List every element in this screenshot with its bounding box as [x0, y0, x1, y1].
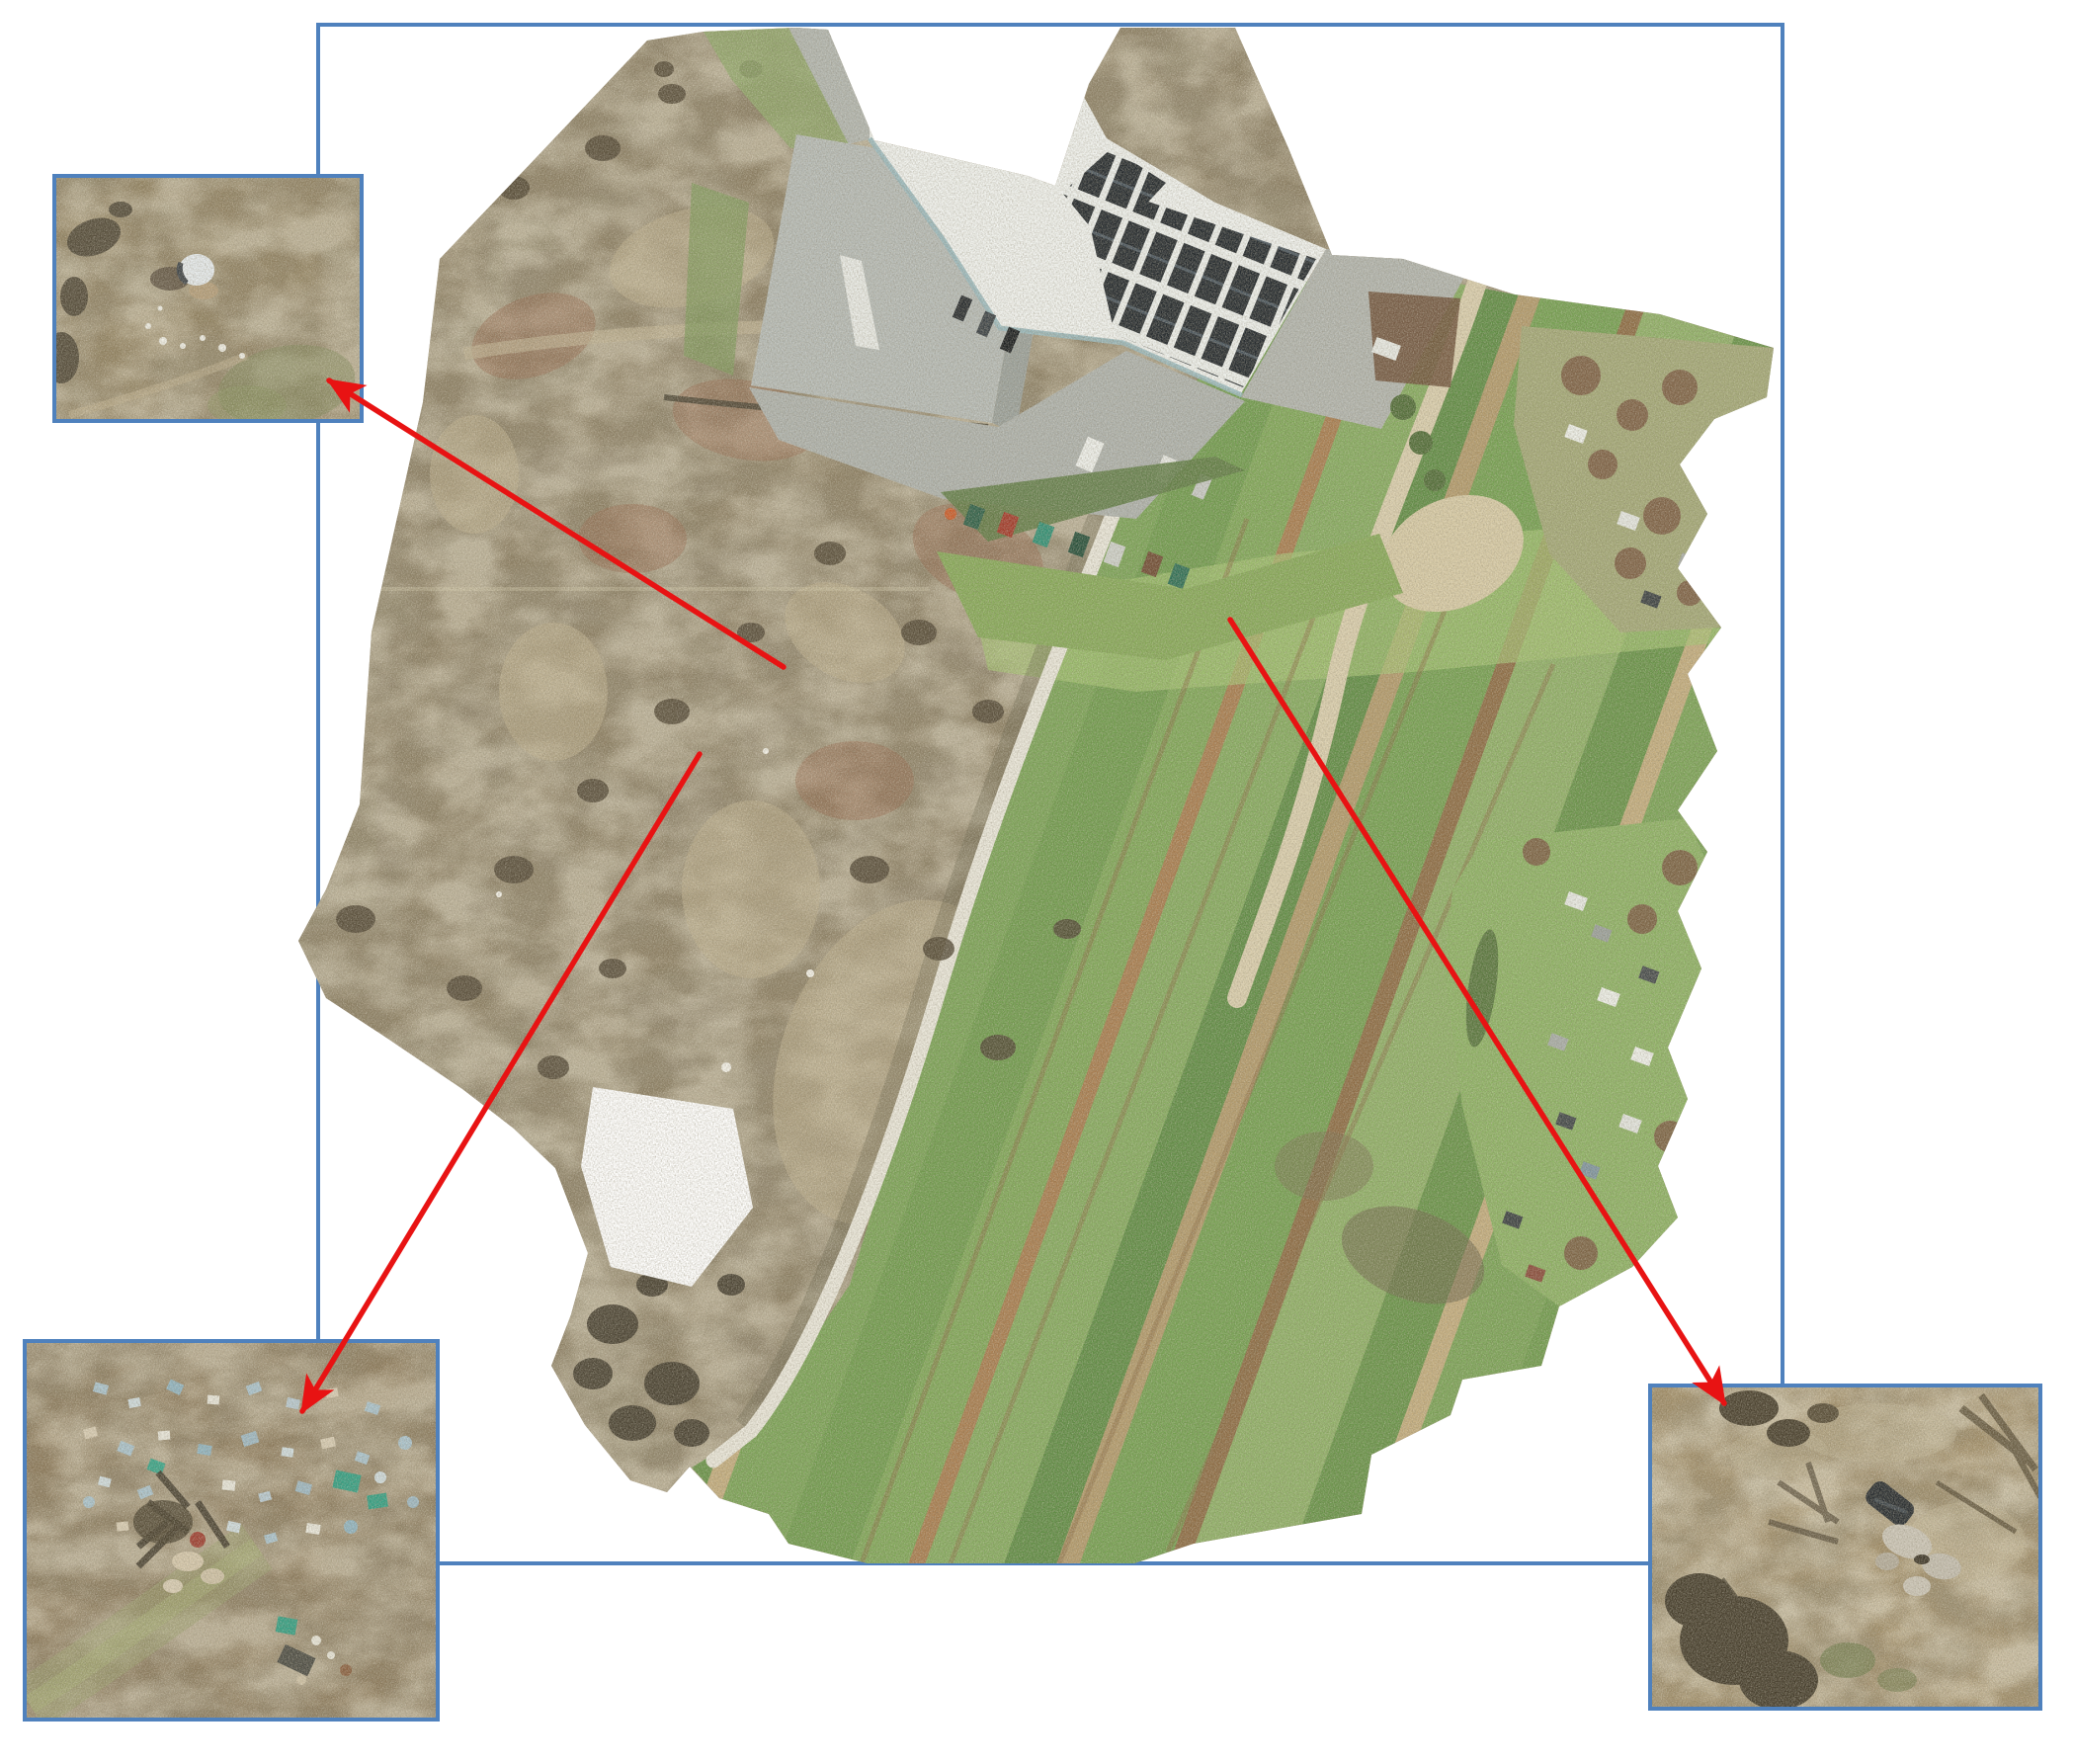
inset-bottom-right — [1650, 1386, 2040, 1710]
inset-top-left — [43, 176, 362, 437]
figure-canvas — [0, 0, 2073, 1764]
orthophoto-figure — [0, 0, 2073, 1764]
inset-bottom-left — [25, 1341, 438, 1720]
